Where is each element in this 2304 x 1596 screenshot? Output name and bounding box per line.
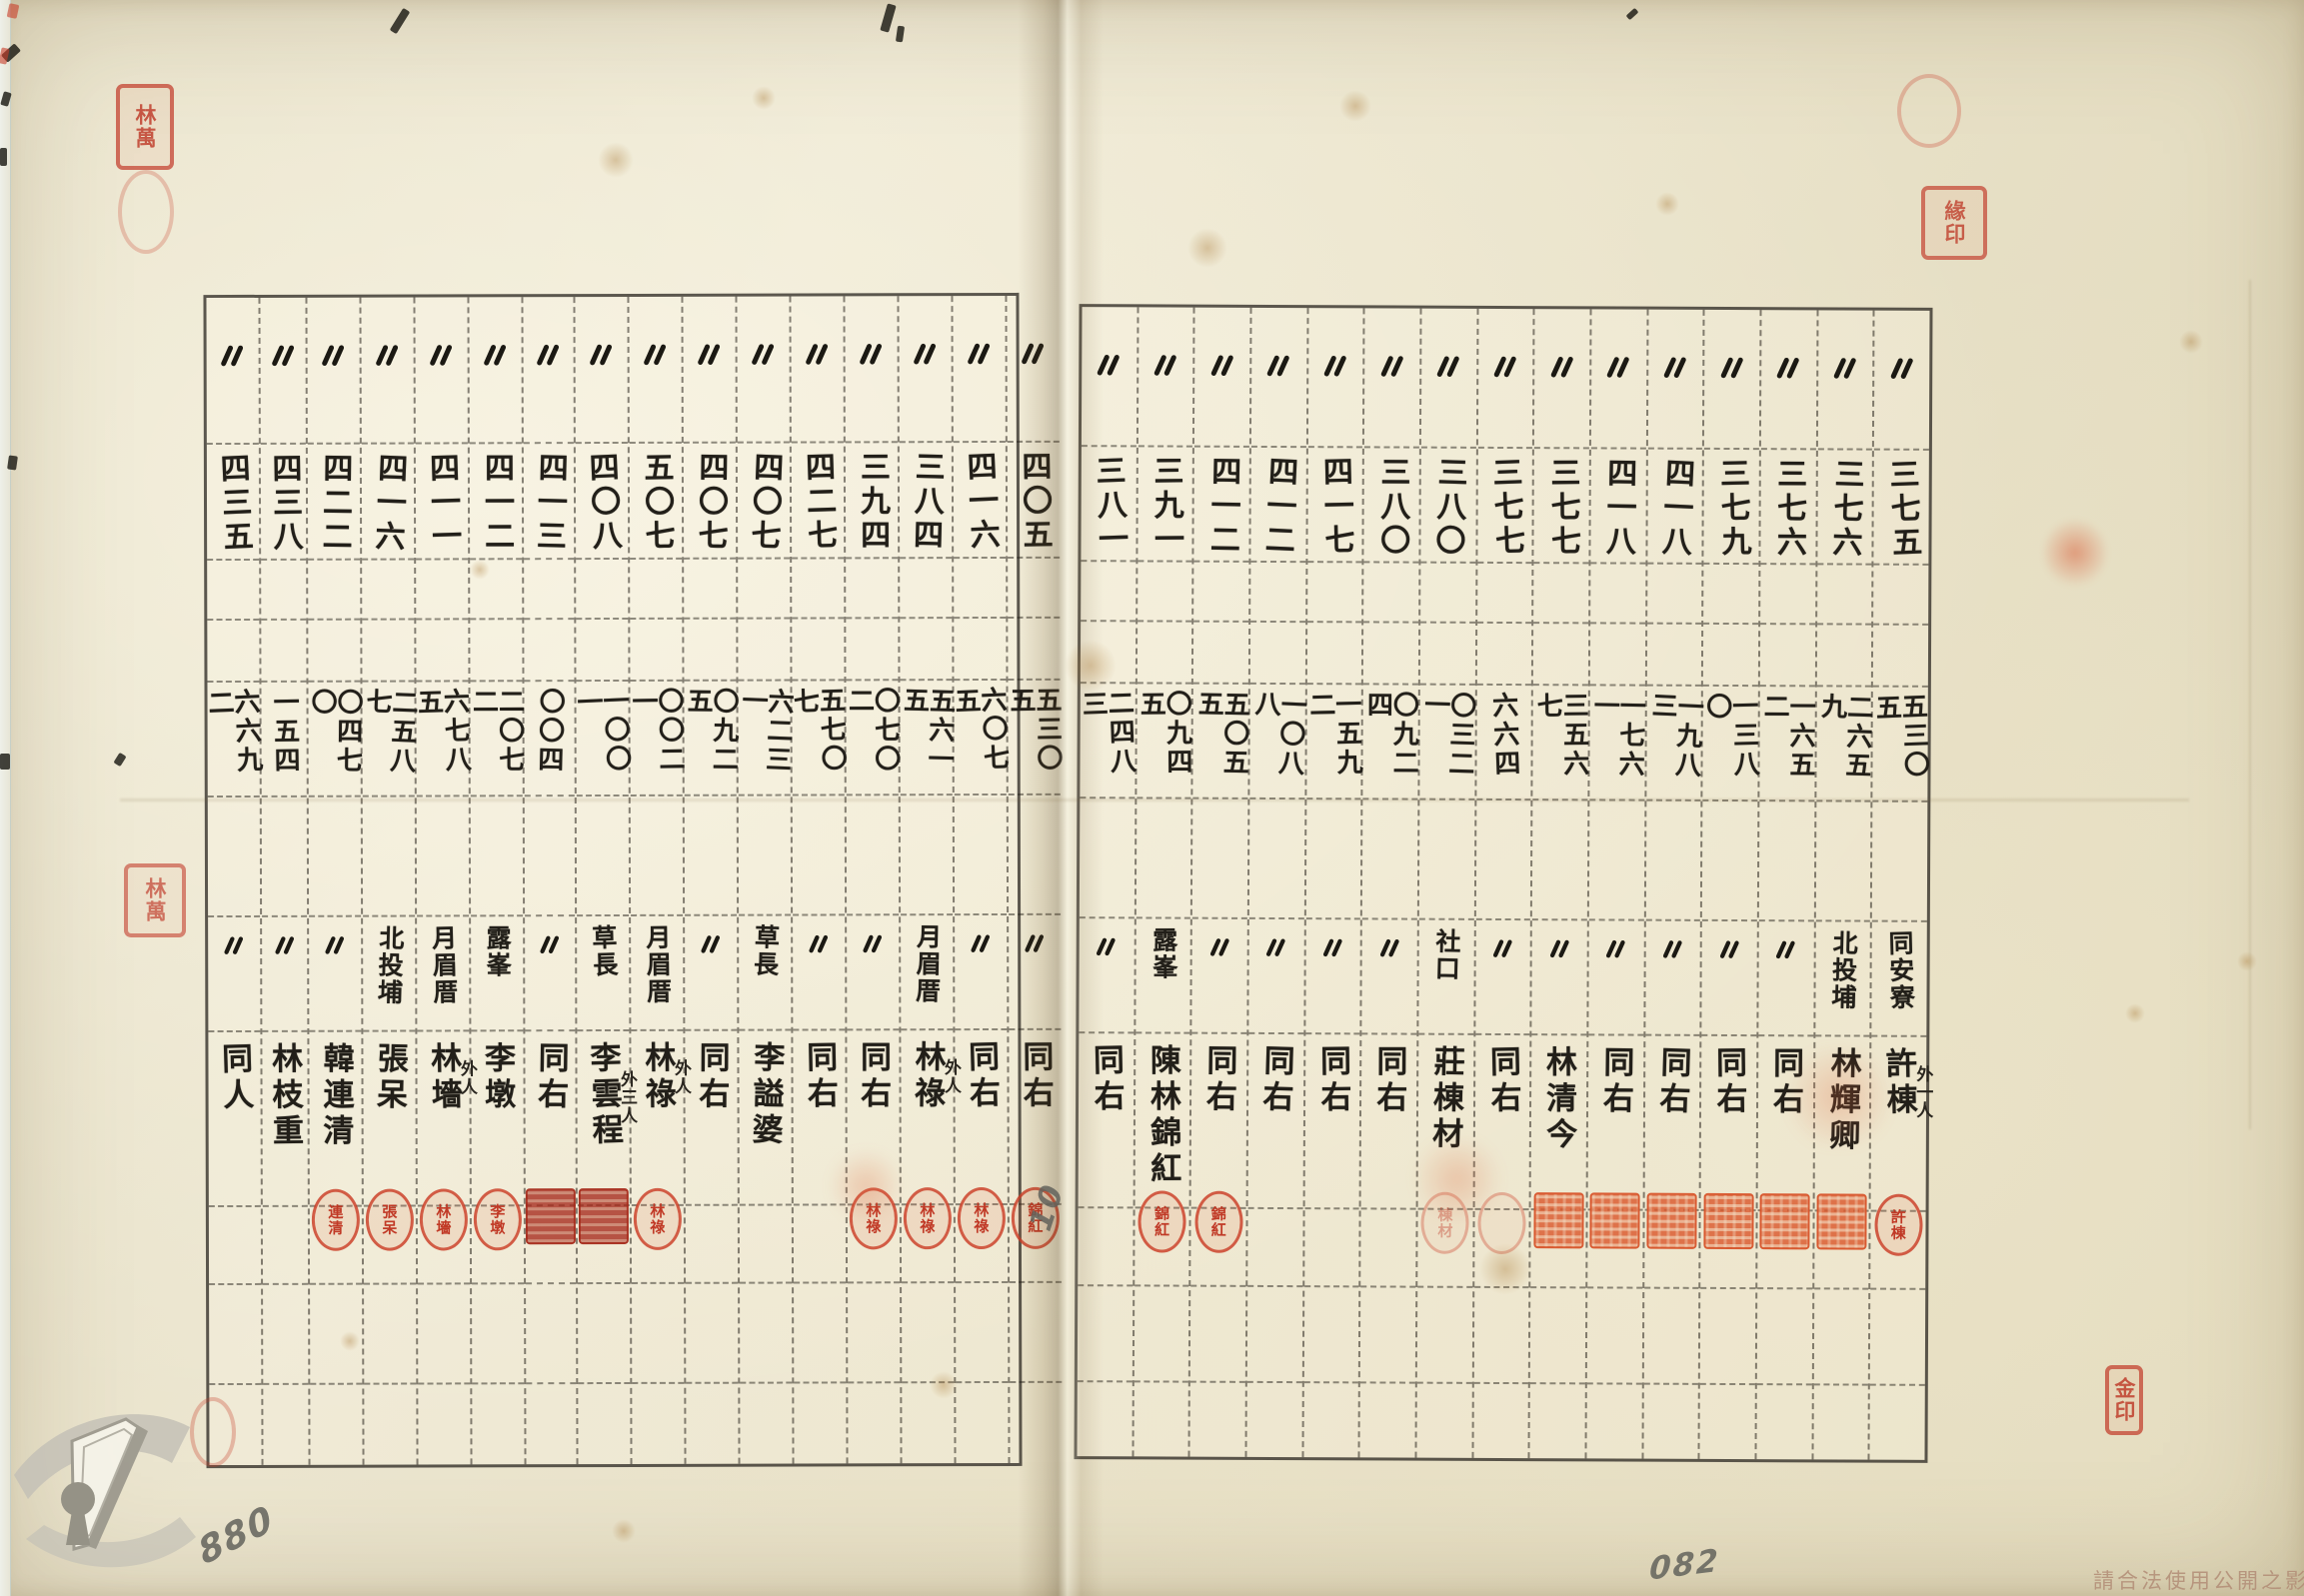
cell-right-c14-place: 北投埔 [1815,921,1870,1036]
cell-right-c12-gap3 [1703,625,1758,687]
person-name: 同右 [1084,1033,1129,1119]
cell-left-c1-upper_number: 四三五 [207,445,259,561]
cell-right-c7-gap2 [1420,564,1475,624]
cell-right-c12-ditto [1704,310,1759,450]
ink-speck [113,753,126,767]
cell-right-c9-upper_number: 三七七 [1534,449,1589,564]
cell-left-c5-seal: 林墻 [418,1206,470,1284]
person-name: 林枝重 [262,1032,307,1154]
cell-right-c7-gap5 [1419,800,1474,920]
cell-right-c1-ditto [1082,307,1137,447]
cell-right-c14-gap2 [1817,565,1872,625]
cell-right-c4-name: 同右 [1248,1034,1303,1209]
cell-left-c14-gap9 [902,1283,954,1383]
cell-left-c16-ditto [1007,296,1059,443]
cell-left-c12-ditto [791,296,843,443]
cell-left-c6-upper_number: 四一二 [470,444,522,560]
cell-left-c12-place [793,915,845,1030]
bottom-left-seal-fragment [190,1397,236,1467]
cell-left-c3-gap10 [310,1385,362,1465]
cell-right-c11-lower_number: 一九八三 [1646,687,1701,801]
ledger-column-right-2: 三九一〇九四五露峯陳林錦紅錦紅 [1134,307,1195,1456]
name-seal-stamp [579,1188,629,1244]
name-seal-stamp: 林祿 [904,1187,952,1249]
cell-left-c12-gap5 [793,796,845,915]
cell-left-c6-gap5 [471,797,523,916]
ledger-column-left-10: 四〇七〇九二五同右 [683,297,740,1464]
cell-right-c2-upper_number: 三九一 [1138,447,1192,562]
cell-right-c7-upper_number: 三八〇 [1420,449,1475,564]
cell-right-c7-ditto [1421,309,1476,449]
name-seal-stamp: 錦紅 [1194,1191,1242,1253]
name-seal-stamp: 張呆 [366,1189,414,1251]
cell-left-c10-gap10 [686,1384,738,1464]
person-name: 同右 [1253,1034,1298,1120]
person-name: 同右 [959,1030,1004,1116]
cell-left-c10-gap5 [685,797,737,916]
ditto-mark [485,341,507,371]
cell-right-c11-seal [1644,1211,1699,1289]
cell-right-c11-gap10 [1643,1385,1698,1459]
person-name: 同右 [1479,1035,1524,1121]
cell-left-c12-lower_number: 五七〇七 [792,681,844,796]
ditto-mark [1551,353,1573,383]
person-name: 同右 [1013,1030,1058,1116]
cell-left-c5-name: 林墻外人 [417,1031,469,1206]
cell-right-c9-gap2 [1534,564,1589,624]
cell-right-c5-ditto [1308,308,1363,448]
cell-right-c2-name: 陳林錦紅 [1135,1033,1189,1208]
cell-right-c4-upper_number: 四一二 [1250,448,1305,563]
cell-left-c6-name: 李墩 [471,1031,523,1206]
ledger-column-right-6: 三八〇〇九二四同右 [1360,308,1422,1457]
cell-right-c8-ditto [1478,309,1533,449]
cell-right-c11-upper_number: 四一八 [1647,450,1702,565]
ditto-mark [1720,937,1739,963]
person-name: 同右 [797,1030,842,1116]
cell-right-c15-gap3 [1873,626,1928,688]
ditto-mark [541,932,560,958]
ledger-column-left-8: 四〇八一〇〇一草長李雲程外三人 [575,297,632,1464]
cell-right-c13-upper_number: 三七六 [1760,450,1815,565]
ledger-column-right-7: 三八〇〇三二一社口莊棟材棟材 [1417,309,1479,1458]
cell-right-c12-gap10 [1700,1385,1755,1459]
ditto-mark [1494,353,1516,383]
cell-left-c10-name: 同右 [685,1031,737,1206]
cell-left-c1-name: 同人 [208,1032,260,1207]
cell-right-c5-upper_number: 四一七 [1307,448,1362,563]
cell-left-c8-seal [578,1206,630,1284]
cell-right-c2-place: 露峯 [1136,918,1190,1033]
cell-left-c14-lower_number: 五六一五 [900,681,952,796]
cell-right-c2-gap2 [1138,562,1192,622]
cell-right-c5-lower_number: 一五九二 [1306,685,1361,799]
cell-left-c1-ditto [206,298,258,445]
cell-right-c15-seal: 許棟 [1871,1212,1926,1290]
cell-right-c3-gap2 [1193,563,1248,623]
cell-left-c4-name: 張呆 [363,1032,415,1207]
cell-right-c9-ditto [1534,309,1589,449]
cell-left-c3-ditto [307,298,359,445]
cell-left-c2-name: 林枝重 [262,1032,307,1207]
name-seal-stamp: 錦紅 [1138,1190,1185,1252]
cell-right-c10-place [1588,920,1643,1035]
person-name: 林墻外人 [421,1031,466,1117]
ledger-column-left-5: 四一一六七八五月眉厝林墻外人林墻 [415,297,472,1464]
cell-right-c9-gap5 [1532,800,1587,920]
cell-right-c1-seal [1078,1208,1133,1286]
fox-spot [1655,192,1679,216]
cell-left-c5-gap2 [416,560,468,620]
person-name: 李墩 [475,1031,520,1117]
cell-right-c13-seal [1757,1211,1812,1289]
ledger-column-left-11: 四〇七六二三一草長李謚婆 [737,297,794,1464]
cell-right-c8-gap9 [1474,1288,1529,1384]
ledger-column-right-4: 四一二一〇八八同右 [1247,308,1309,1457]
cell-right-c9-seal [1531,1210,1586,1288]
cell-right-c15-gap10 [1870,1386,1925,1460]
cell-right-c4-seal [1247,1209,1302,1287]
red-edge-mark [7,3,20,19]
cell-left-c7-lower_number: 〇〇四 [524,682,574,797]
ditto-mark [972,931,991,957]
fox-spot [1479,1243,1531,1295]
ledger-column-right-9: 三七七三五六七林清今 [1530,309,1592,1458]
ditto-mark [1026,931,1045,957]
cell-right-c6-place [1362,919,1417,1034]
cell-left-c10-place [685,916,737,1031]
cell-left-c3-gap5 [309,798,361,917]
cell-right-c1-gap5 [1080,798,1135,918]
cell-left-c2-gap9 [263,1285,308,1385]
cell-right-c6-seal [1361,1209,1416,1287]
ledger-column-right-12: 三七九一三八〇同右 [1700,310,1762,1459]
cell-right-c4-gap3 [1250,623,1305,685]
cell-right-c15-gap2 [1874,566,1929,626]
cell-right-c5-gap9 [1304,1287,1359,1383]
cell-right-c9-gap3 [1533,624,1588,686]
cell-left-c3-lower_number: 〇四七〇 [308,683,360,798]
cell-left-c1-place [208,917,260,1032]
bottom-right-seal: 金印 [2105,1365,2143,1435]
cell-right-c3-place [1192,919,1247,1034]
cell-right-c11-place [1645,921,1700,1036]
ditto-mark [1607,937,1626,963]
cell-right-c11-gap3 [1647,625,1702,687]
ditto-mark [1323,935,1342,961]
cell-right-c11-gap5 [1646,801,1701,921]
cell-left-c2-gap10 [263,1385,308,1465]
ledger-column-right-15: 三七五五三〇五同安寮許棟外一人許棟 [1870,311,1930,1460]
cell-left-c6-seal: 李墩 [472,1206,524,1284]
cell-right-c15-lower_number: 五三〇五 [1873,688,1928,802]
cell-left-c2-gap5 [262,798,307,917]
ditto-mark [1023,340,1045,370]
name-seal-stamp [526,1188,576,1244]
ledger-column-right-11: 四一八一九八三同右 [1643,310,1705,1459]
cell-left-c1-gap5 [208,798,260,917]
cell-right-c2-gap5 [1137,798,1191,918]
cell-right-c6-gap10 [1360,1383,1415,1457]
cell-right-c8-gap2 [1477,564,1532,624]
person-name: 陳林錦紅 [1140,1033,1185,1191]
cell-left-c13-place [847,915,899,1030]
cell-left-c5-gap9 [418,1284,470,1384]
cell-left-c7-seal [526,1206,576,1284]
cell-left-c10-seal [686,1206,738,1284]
ditto-mark [1098,934,1117,960]
person-name: 張呆 [367,1032,412,1118]
ledger-column-left-13: 三九四〇七〇二同右林祿 [845,296,902,1463]
cell-right-c1-lower_number: 二四八三 [1080,684,1135,798]
cell-left-c13-lower_number: 〇七〇二 [846,681,898,796]
cell-left-c4-gap2 [362,561,414,621]
cell-right-c5-place [1305,919,1360,1034]
cell-left-c15-upper_number: 四一六 [954,443,1006,559]
name-seal-stamp: 連清 [312,1189,360,1251]
cell-right-c15-ditto [1874,311,1929,451]
cell-left-c7-place [525,916,575,1031]
ledger-column-left-7: 四一三〇〇四同右 [523,297,578,1464]
cell-right-c14-ditto [1818,310,1873,450]
cell-left-c11-ditto [737,297,789,444]
cell-right-c9-gap10 [1530,1384,1585,1458]
cell-left-c13-ditto [845,296,897,443]
cell-left-c6-place: 露峯 [471,916,523,1031]
cell-left-c15-ditto [953,296,1005,443]
person-name: 林祿外人 [635,1031,680,1117]
cell-left-c3-gap2 [308,561,360,621]
cell-right-c6-ditto [1364,308,1419,448]
cell-left-c3-upper_number: 四二二 [308,445,360,561]
cell-right-c8-gap3 [1477,624,1532,686]
ledger-column-left-16: 四〇五五三〇五同右錦紅 [1007,296,1062,1463]
cell-right-c2-ditto [1139,307,1193,447]
ditto-mark [1663,937,1682,963]
cell-right-c3-ditto [1194,308,1249,448]
cell-left-c6-gap9 [472,1284,524,1384]
cell-left-c5-lower_number: 六七八五 [416,682,468,797]
cell-left-c15-gap3 [954,619,1006,681]
cell-right-c4-place [1248,919,1303,1034]
cell-left-c11-upper_number: 四〇七 [738,444,790,560]
fox-spot [2237,951,2257,971]
ledger-column-left-3: 四二二〇四七〇韓連清連清 [307,298,364,1465]
cell-left-c13-upper_number: 三九四 [846,443,898,559]
cell-right-c15-gap9 [1870,1290,1925,1386]
ink-speck [0,148,7,166]
red-ink-smudge [1407,1139,1507,1219]
cell-left-c8-gap9 [578,1284,630,1384]
cell-right-c14-gap3 [1817,625,1872,687]
fox-spot [598,142,634,178]
cell-right-c12-lower_number: 一三八〇 [1703,687,1758,801]
ledger-column-left-6: 四一二二〇七二露峯李墩李墩 [469,297,526,1464]
cell-right-c14-gap9 [1814,1289,1869,1385]
cell-left-c1-gap3 [207,621,259,683]
horizontal-crease [120,798,2189,801]
person-name: 同人 [212,1032,257,1118]
person-name: 同右 [1196,1034,1241,1120]
cell-left-c5-gap10 [418,1384,470,1464]
cell-left-c16-upper_number: 四〇五 [1008,443,1060,559]
cell-left-c12-gap9 [794,1283,846,1383]
cell-left-c4-ditto [361,298,413,445]
cell-right-c13-gap10 [1757,1385,1812,1459]
cell-right-c12-place [1702,921,1757,1036]
fox-spot [1065,640,1117,692]
ditto-mark [753,341,775,371]
cell-left-c5-upper_number: 四一一 [416,444,468,560]
cell-right-c9-place [1532,920,1587,1035]
cell-left-c2-lower_number: 一五四 [261,683,306,798]
cell-right-c4-ditto [1251,308,1306,448]
ledger-column-right-13: 三七六一六五二同右 [1757,310,1819,1459]
cell-right-c6-upper_number: 三八〇 [1364,448,1419,563]
cell-left-c14-gap5 [901,796,953,915]
cell-left-c11-seal [740,1206,792,1284]
cell-right-c3-seal: 錦紅 [1191,1209,1246,1287]
cell-left-c8-lower_number: 一〇〇一 [576,682,628,797]
cell-left-c9-ditto [629,297,681,444]
ditto-mark [699,341,721,371]
cell-right-c11-gap2 [1647,565,1702,625]
cell-right-c13-gap2 [1760,565,1815,625]
fox-spot [1187,228,1227,268]
ditto-mark [645,341,667,371]
cell-right-c8-upper_number: 三七七 [1477,449,1532,564]
cell-right-c10-lower_number: 一七六一 [1589,686,1644,800]
cell-left-c3-seal: 連清 [310,1207,362,1285]
ditto-mark [1550,936,1569,962]
cell-left-c11-gap9 [740,1284,792,1384]
cell-right-c9-gap9 [1530,1288,1585,1384]
cell-left-c8-gap3 [576,620,628,682]
name-seal-stamp [1646,1193,1696,1249]
fox-spot [930,1371,958,1399]
cell-right-c1-gap2 [1081,562,1136,622]
cell-left-c9-gap9 [632,1284,684,1384]
cell-right-c3-name: 同右 [1191,1034,1246,1209]
cell-right-c5-gap3 [1307,623,1362,685]
cell-right-c10-gap2 [1590,564,1645,624]
fox-spot [752,86,776,110]
ledger-column-right-14: 三七六二六五九北投埔林輝卿 [1813,310,1875,1459]
ink-speck [7,455,18,470]
ink-speck [880,3,896,32]
person-name: 李雲程外三人 [581,1031,626,1153]
ledger-column-left-14: 三八四五六一五月眉厝林祿外人林祿 [899,296,956,1463]
ditto-mark [861,340,883,370]
fox-spot [1339,90,1371,122]
cell-left-c6-ditto [469,297,521,444]
cell-left-c6-lower_number: 二〇七二 [470,682,522,797]
cell-left-c11-gap2 [738,560,790,620]
person-name: 林祿外人 [905,1030,950,1116]
name-seal-stamp [1760,1193,1810,1249]
cell-left-c7-gap3 [524,620,574,682]
ditto-mark [810,932,829,958]
ditto-mark [1664,354,1686,384]
person-name: 同右 [851,1030,896,1116]
person-name: 同右 [1366,1034,1411,1120]
ditto-mark [272,342,294,372]
cell-right-c15-place: 同安寮 [1872,922,1927,1037]
cell-left-c4-lower_number: 二五八七 [362,683,414,798]
cell-right-c6-gap5 [1362,799,1417,919]
ditto-mark [1834,354,1856,384]
fox-spot [340,1331,360,1351]
ditto-mark [377,342,399,372]
cell-right-c3-upper_number: 四一二 [1194,448,1249,563]
cell-left-c9-gap10 [632,1384,684,1464]
cell-left-c4-upper_number: 四一六 [362,445,414,561]
ditto-mark [538,341,560,371]
cell-right-c13-gap5 [1759,801,1814,921]
cell-right-c12-upper_number: 三七九 [1704,450,1759,565]
cell-right-c4-gap10 [1247,1383,1302,1457]
cell-right-c3-gap10 [1190,1383,1245,1457]
person-name: 同右 [1706,1036,1751,1122]
cell-right-c6-lower_number: 〇九二四 [1363,685,1418,799]
cell-left-c12-upper_number: 四二七 [792,443,844,559]
cell-left-c11-place: 草長 [739,916,791,1031]
cell-right-c7-lower_number: 〇三二一 [1419,686,1474,800]
cell-left-c4-seal: 張呆 [364,1207,416,1285]
ditto-mark [1324,352,1346,382]
cell-right-c13-place [1758,921,1813,1036]
cell-left-c8-gap10 [578,1384,630,1464]
cell-left-c11-lower_number: 六二三一 [738,682,790,797]
cell-right-c10-seal [1587,1210,1642,1288]
cell-left-c14-ditto [899,296,951,443]
cell-left-c11-gap10 [740,1384,792,1464]
name-seal-stamp: 林祿 [634,1188,682,1250]
cell-right-c5-name: 同右 [1304,1034,1359,1209]
cell-right-c6-gap9 [1360,1287,1415,1383]
cell-right-c14-lower_number: 二六五九 [1816,687,1871,801]
cell-left-c12-gap10 [794,1383,846,1463]
cell-left-c15-name: 同右 [955,1030,1007,1205]
pencil-note-bottom-right: 082 [1648,1542,1720,1587]
cell-right-c5-gap5 [1306,799,1361,919]
cell-left-c9-lower_number: 〇〇二一 [630,682,682,797]
cell-left-c10-gap3 [684,620,736,682]
cell-right-c12-name: 同右 [1701,1036,1756,1211]
cell-left-c8-name: 李雲程外三人 [577,1031,629,1206]
name-seal-stamp: 許棟 [1874,1194,1922,1256]
cell-left-c4-gap10 [364,1385,416,1465]
name-seal-stamp [1590,1192,1640,1248]
name-seal-stamp: 林墻 [420,1188,468,1250]
cell-right-c8-place [1475,920,1530,1035]
cell-left-c1-lower_number: 六六九二 [207,683,259,798]
cell-left-c8-gap5 [577,797,629,916]
cell-right-c11-ditto [1648,310,1703,450]
cell-left-c7-gap10 [526,1384,576,1464]
ditto-mark [1721,354,1743,384]
cell-left-c12-seal [794,1205,846,1283]
right-top-round-seal [1897,74,1961,148]
cell-left-c5-ditto [415,297,467,444]
scanner-edge [0,0,11,1596]
cell-left-c15-gap2 [954,559,1006,619]
fox-spot [470,560,490,580]
cell-right-c14-gap10 [1813,1385,1868,1459]
cell-left-c6-gap3 [470,620,522,682]
cell-left-c13-gap3 [846,619,898,681]
ledger-column-left-15: 四一六六〇七五同右林祿 [953,296,1010,1463]
